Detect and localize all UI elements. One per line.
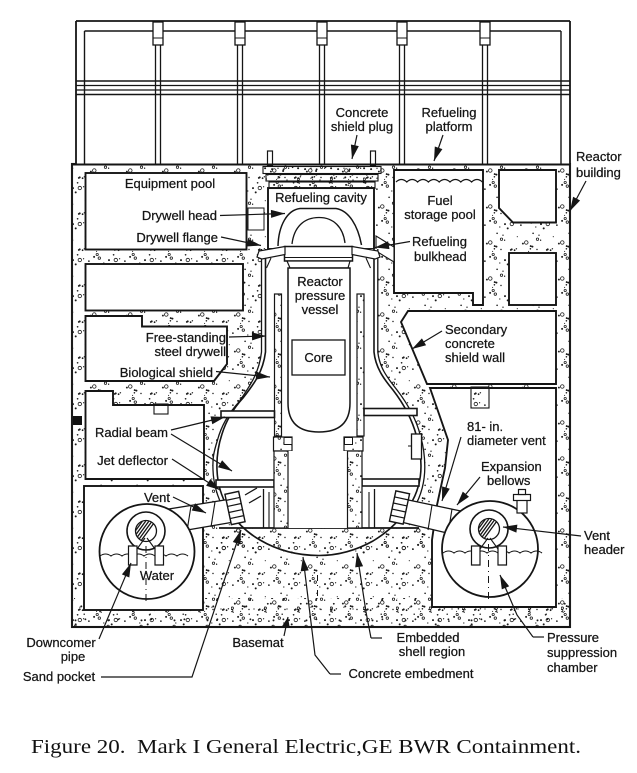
svg-text:diameter vent: diameter vent — [467, 433, 546, 448]
svg-text:shield plug: shield plug — [331, 119, 393, 134]
svg-text:Downcomer: Downcomer — [26, 635, 96, 650]
svg-text:Concrete embedment: Concrete embedment — [348, 666, 473, 681]
svg-text:Radial beam: Radial beam — [95, 425, 168, 440]
svg-text:Embedded: Embedded — [397, 630, 460, 645]
svg-text:Reactor: Reactor — [297, 274, 343, 289]
svg-text:Drywell flange: Drywell flange — [136, 230, 218, 245]
svg-text:shield wall: shield wall — [445, 350, 505, 365]
svg-text:Reactor: Reactor — [576, 149, 622, 164]
svg-text:bellows: bellows — [487, 473, 531, 488]
svg-text:Refueling cavity: Refueling cavity — [275, 190, 367, 205]
svg-text:platform: platform — [426, 119, 473, 134]
svg-text:Expansion: Expansion — [481, 459, 542, 474]
svg-text:concrete: concrete — [445, 336, 495, 351]
svg-text:Fuel: Fuel — [427, 193, 452, 208]
svg-text:Vent: Vent — [584, 528, 610, 543]
svg-text:Concrete: Concrete — [336, 105, 389, 120]
svg-text:steel drywell: steel drywell — [154, 344, 226, 359]
svg-text:pressure: pressure — [295, 288, 346, 303]
svg-text:81- in.: 81- in. — [467, 419, 503, 434]
svg-text:Drywell head: Drywell head — [142, 208, 217, 223]
svg-text:Core: Core — [304, 350, 332, 365]
svg-text:bulkhead: bulkhead — [414, 249, 467, 264]
svg-text:shell region: shell region — [399, 644, 466, 659]
svg-text:Jet deflector: Jet deflector — [97, 453, 168, 468]
svg-text:header: header — [584, 542, 625, 557]
svg-text:Water: Water — [140, 568, 175, 583]
svg-text:Basemat: Basemat — [232, 635, 284, 650]
svg-text:Equipment pool: Equipment pool — [125, 176, 215, 191]
svg-text:Biological shield: Biological shield — [120, 365, 213, 380]
svg-text:pipe: pipe — [61, 649, 86, 664]
svg-text:Vent: Vent — [144, 490, 170, 505]
svg-text:Secondary: Secondary — [445, 322, 508, 337]
svg-text:Sand pocket: Sand pocket — [23, 669, 96, 684]
svg-text:Refueling: Refueling — [422, 105, 477, 120]
svg-text:vessel: vessel — [302, 302, 339, 317]
svg-text:Free-standing: Free-standing — [146, 330, 226, 345]
svg-text:chamber: chamber — [547, 660, 598, 675]
svg-text:Pressure: Pressure — [547, 630, 599, 645]
svg-text:Figure 20. Mark I General Ele: Figure 20. Mark I General Electric,GE BW… — [31, 736, 581, 758]
svg-text:storage pool: storage pool — [404, 207, 476, 222]
svg-text:building: building — [576, 165, 621, 180]
svg-text:Refueling: Refueling — [412, 234, 467, 249]
svg-text:suppression: suppression — [547, 645, 617, 660]
